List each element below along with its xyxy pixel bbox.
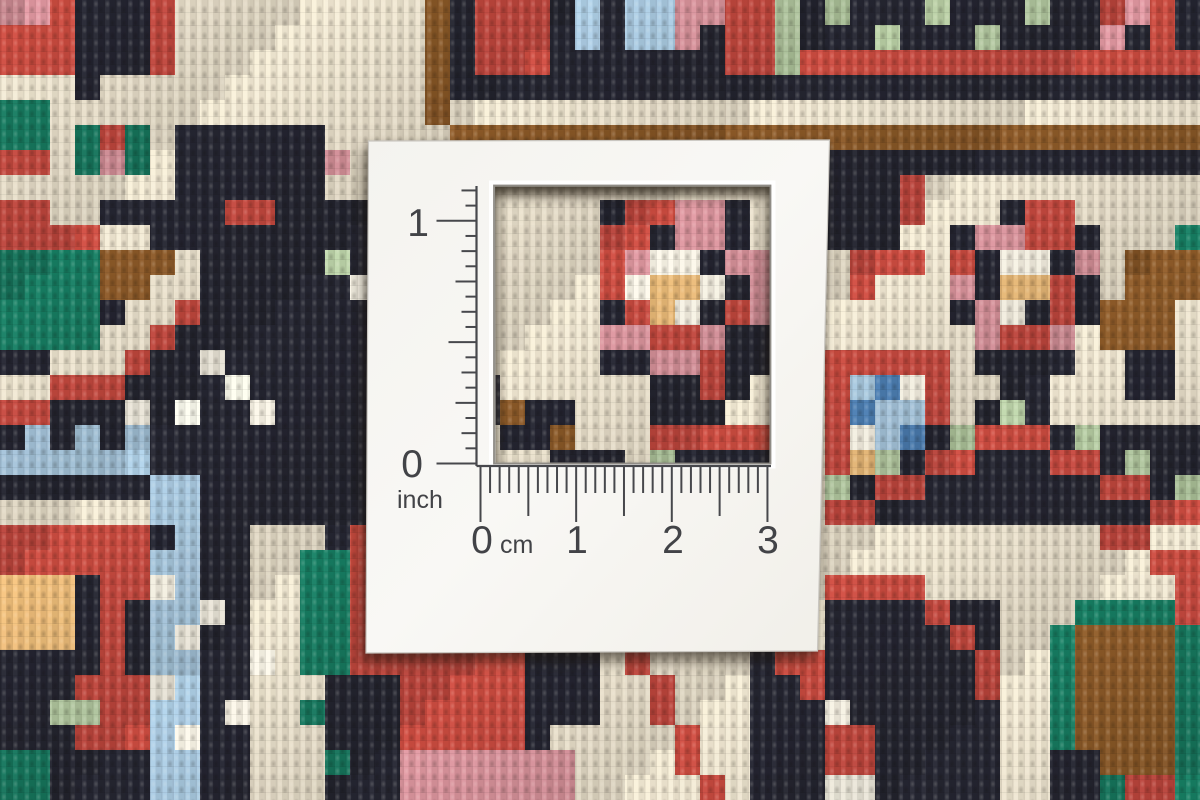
card-face	[366, 140, 830, 653]
inch-label-1: 1	[407, 202, 429, 245]
measure-card: 1 0 inch 0 cm 1 2 3	[0, 0, 1200, 800]
window-cut-line	[494, 186, 771, 464]
window-shadow-top	[495, 186, 770, 201]
inch-label-0: 0	[401, 443, 423, 486]
cm-label-2: 2	[662, 519, 684, 562]
cm-label-0: 0	[471, 519, 493, 562]
cm-unit-label: cm	[500, 531, 533, 559]
cm-label-3: 3	[757, 519, 779, 562]
cm-label-1: 1	[566, 519, 588, 562]
inch-unit-label: inch	[397, 486, 443, 514]
window-bevel	[492, 183, 774, 466]
rug-closeup-photo: 1 0 inch 0 cm 1 2 3	[0, 0, 1200, 800]
window-shadow-left	[495, 186, 506, 463]
